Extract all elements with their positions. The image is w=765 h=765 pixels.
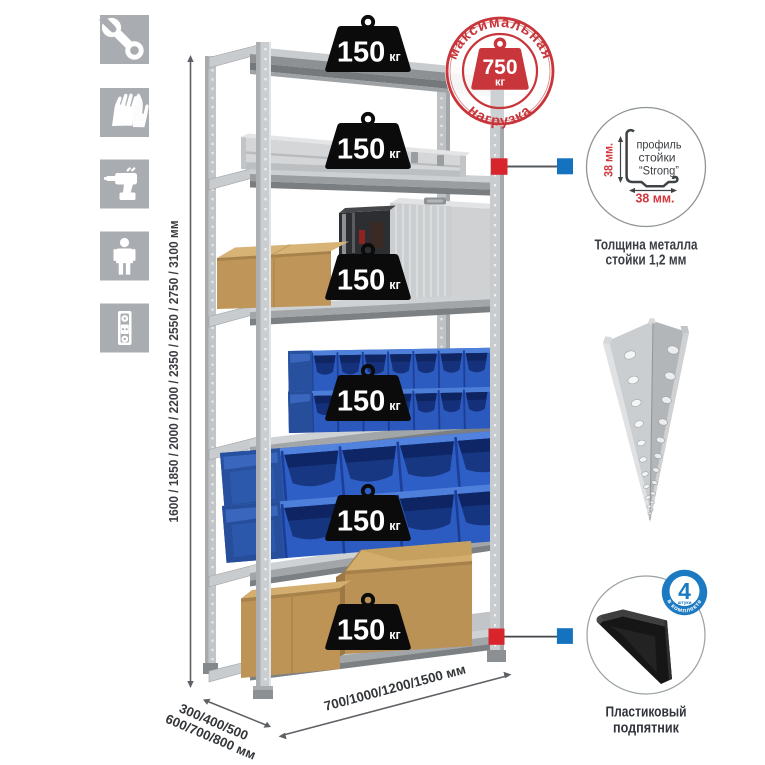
svg-text:Пластиковый: Пластиковый: [606, 705, 687, 721]
svg-text:1600 / 1850 / 2000 / 2200 / 23: 1600 / 1850 / 2000 / 2200 / 2350 / 2550 …: [167, 221, 181, 523]
svg-text:Толщина металла: Толщина металла: [595, 238, 699, 254]
svg-text:стойки: стойки: [639, 151, 676, 165]
svg-text:38 мм.: 38 мм.: [602, 143, 616, 177]
svg-text:штуки: штуки: [678, 600, 692, 605]
svg-text:подпятник: подпятник: [613, 721, 680, 737]
svg-text:38 мм.: 38 мм.: [636, 191, 675, 206]
svg-text:“Strong”: “Strong”: [639, 164, 679, 178]
svg-text:стойки 1,2 мм: стойки 1,2 мм: [606, 253, 687, 269]
svg-text:кг: кг: [495, 77, 506, 89]
svg-text:профиль: профиль: [637, 138, 682, 152]
